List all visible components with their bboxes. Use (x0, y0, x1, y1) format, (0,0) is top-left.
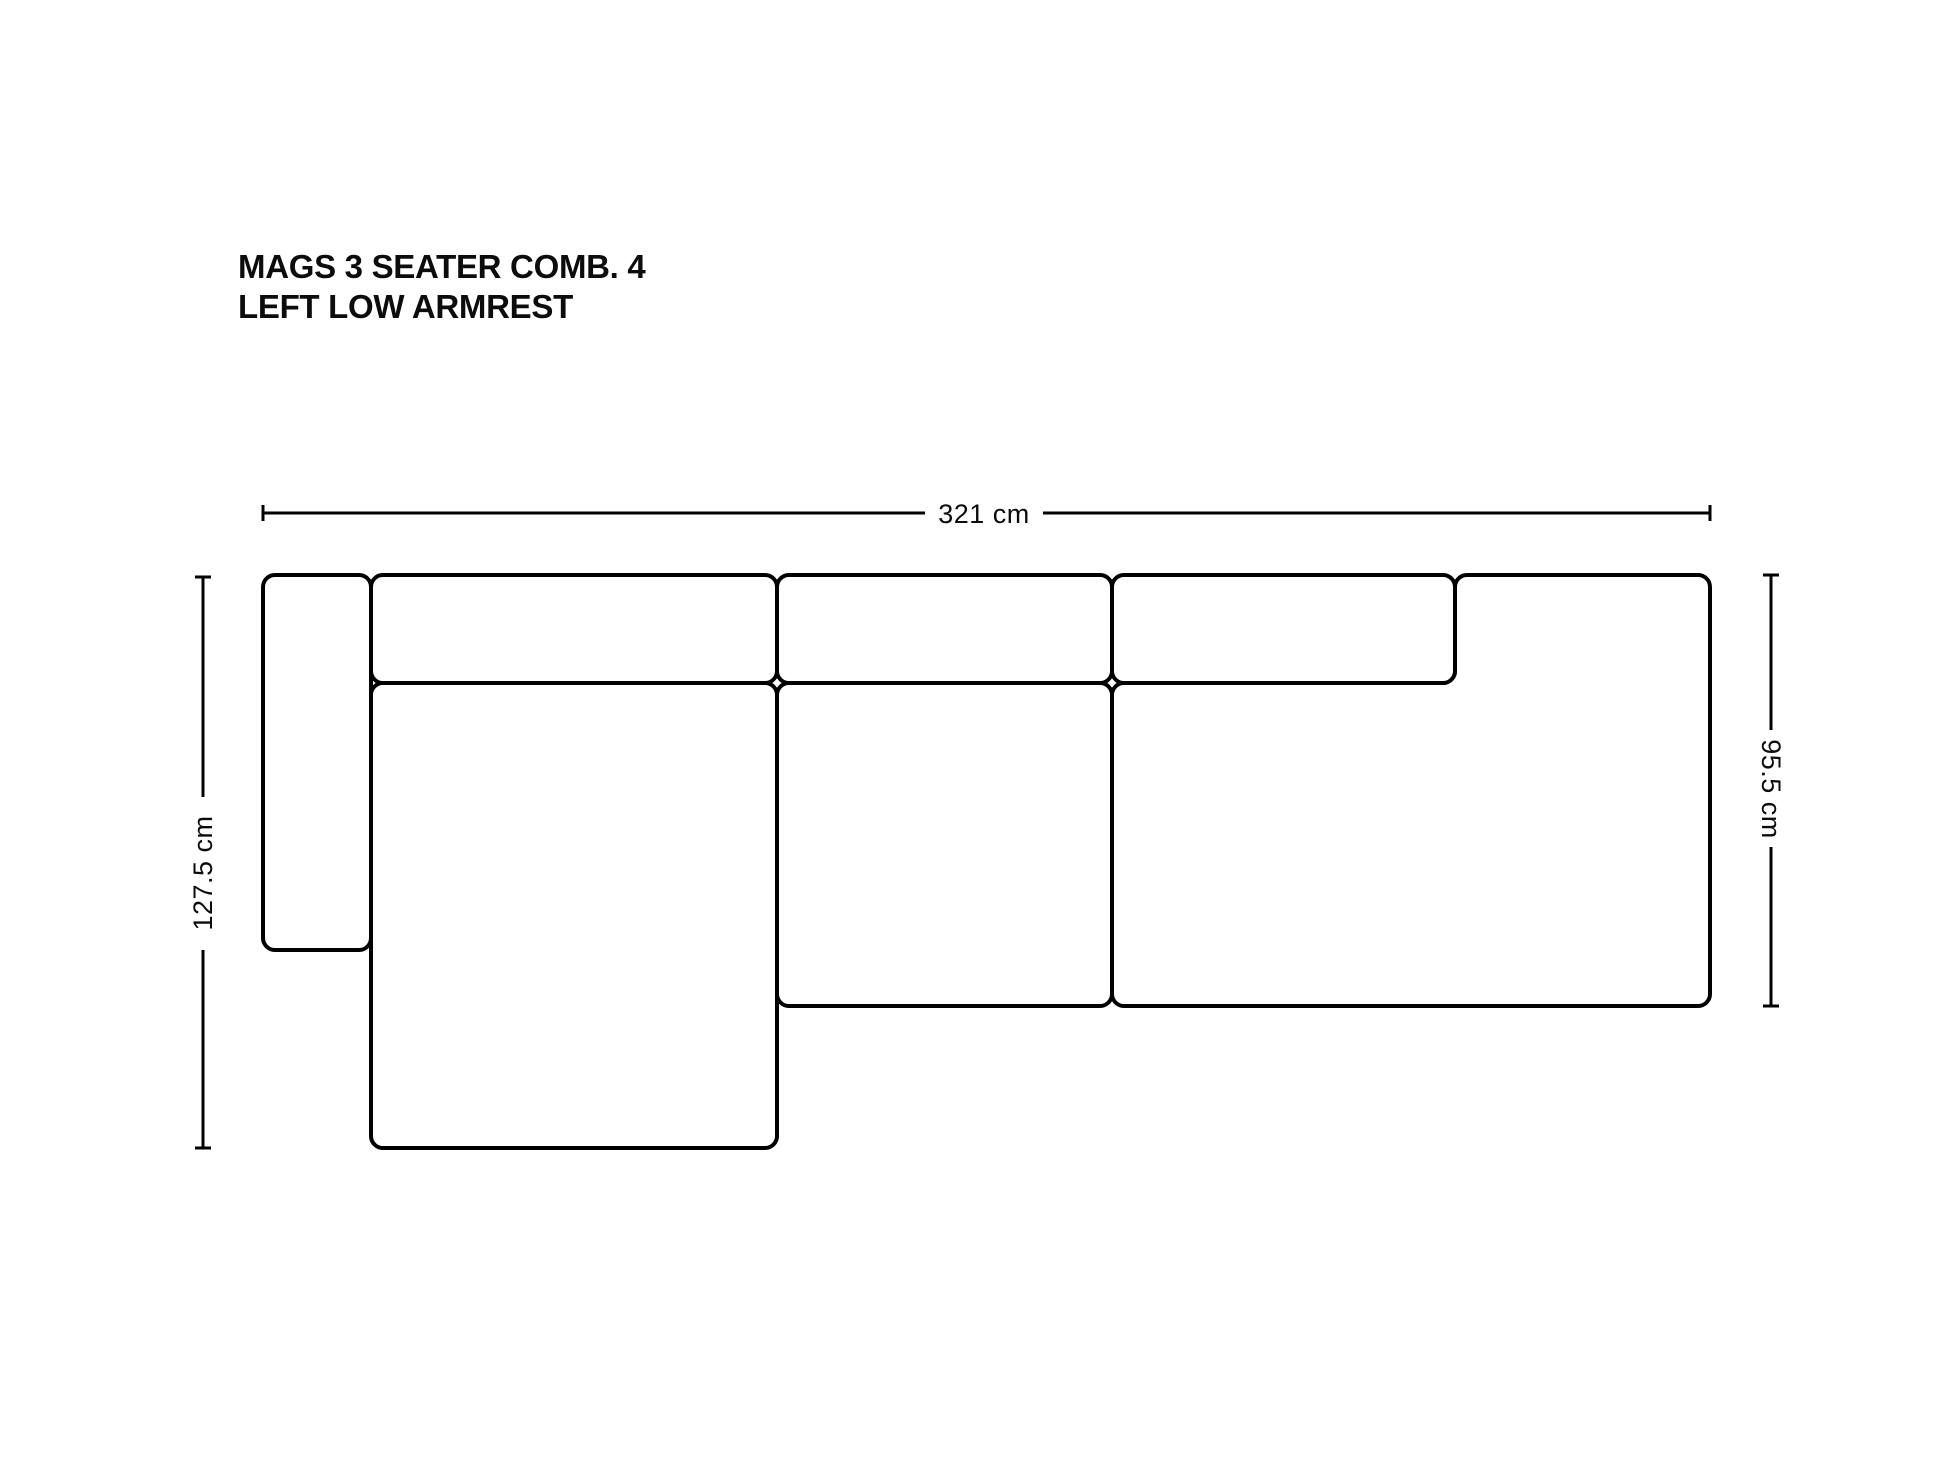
back-cushion-left (371, 575, 777, 683)
dimension-overall-depth: 127.5 cm (188, 577, 218, 1148)
dimension-body-depth: 95.5 cm (1756, 575, 1786, 1006)
sofa-modules (263, 575, 1710, 1148)
diagram-canvas: MAGS 3 SEATER COMB. 4 LEFT LOW ARMREST 3… (0, 0, 1946, 1464)
chaise-seat (371, 683, 777, 1148)
sofa-plan-drawing: 321 cm 127.5 cm 95.5 cm (0, 0, 1946, 1464)
back-cushion-right (1112, 575, 1455, 683)
back-cushion-middle (777, 575, 1112, 683)
overall-depth-label: 127.5 cm (188, 815, 218, 930)
body-depth-label: 95.5 cm (1756, 739, 1786, 839)
middle-seat (777, 683, 1112, 1006)
left-low-armrest (263, 575, 371, 950)
dimension-overall-width: 321 cm (263, 499, 1710, 529)
overall-width-label: 321 cm (938, 499, 1030, 529)
